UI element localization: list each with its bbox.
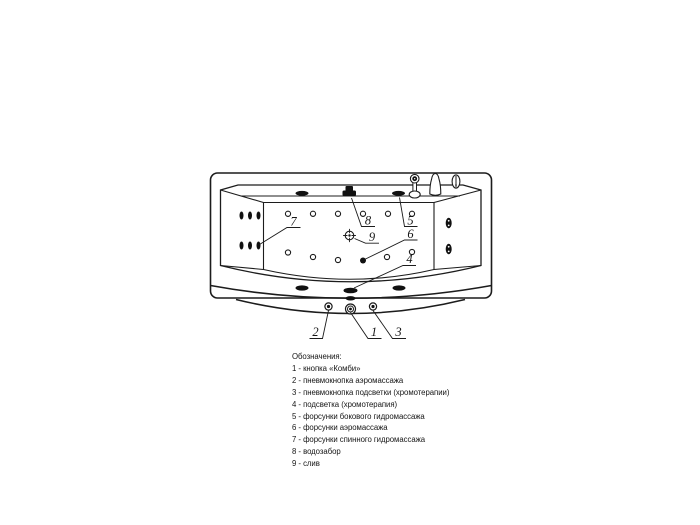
corner-slope-lines	[221, 190, 482, 270]
legend: Обозначения: 1 - кнопка «Комби» 2 - пнев…	[292, 351, 449, 470]
hand-shower-icon	[409, 174, 420, 198]
legend-item-2: 2 - пневмокнопка аэромассажа	[292, 375, 449, 387]
legend-item-8: 8 - водозабор	[292, 446, 449, 458]
faucet-spout-icon	[430, 174, 441, 196]
callout-4: 4	[406, 252, 412, 266]
air-button	[325, 303, 332, 310]
leader-4	[354, 266, 416, 289]
callout-9: 9	[369, 230, 376, 244]
right-wall-jet-icon	[446, 218, 452, 254]
light-button	[369, 303, 376, 310]
technical-drawing-page: 1 2 3 4 5 6 7 8 9 Обозначения: 1 - кнопк…	[0, 0, 700, 525]
callout-leader-lines	[260, 198, 418, 339]
legend-item-6: 6 - форсунки аэромассажа	[292, 422, 449, 434]
leader-7	[260, 228, 301, 245]
water-intake-icon	[343, 186, 357, 196]
callout-6: 6	[407, 227, 414, 241]
back-jets-group	[240, 212, 261, 250]
air-jet-highlighted	[360, 258, 366, 264]
callout-8: 8	[365, 214, 372, 228]
mixer-knob-icon	[452, 175, 460, 188]
legend-item-3: 3 - пневмокнопка подсветки (хромотерапии…	[292, 387, 449, 399]
drain-icon	[343, 229, 356, 242]
callout-2: 2	[312, 325, 318, 339]
legend-item-1: 1 - кнопка «Комби»	[292, 363, 449, 375]
legend-item-9: 9 - слив	[292, 458, 449, 470]
callout-1: 1	[371, 325, 377, 339]
callout-3: 3	[394, 325, 401, 339]
chromotherapy-light-icon	[344, 288, 358, 301]
callout-7: 7	[290, 215, 297, 229]
leader-9	[355, 239, 380, 244]
legend-item-5: 5 - форсунки бокового гидромассажа	[292, 411, 449, 423]
legend-item-7: 7 - форсунки спинного гидромассажа	[292, 434, 449, 446]
callout-5: 5	[407, 214, 413, 228]
legend-title: Обозначения:	[292, 351, 449, 363]
legend-item-4: 4 - подсветка (хромотерапия)	[292, 399, 449, 411]
